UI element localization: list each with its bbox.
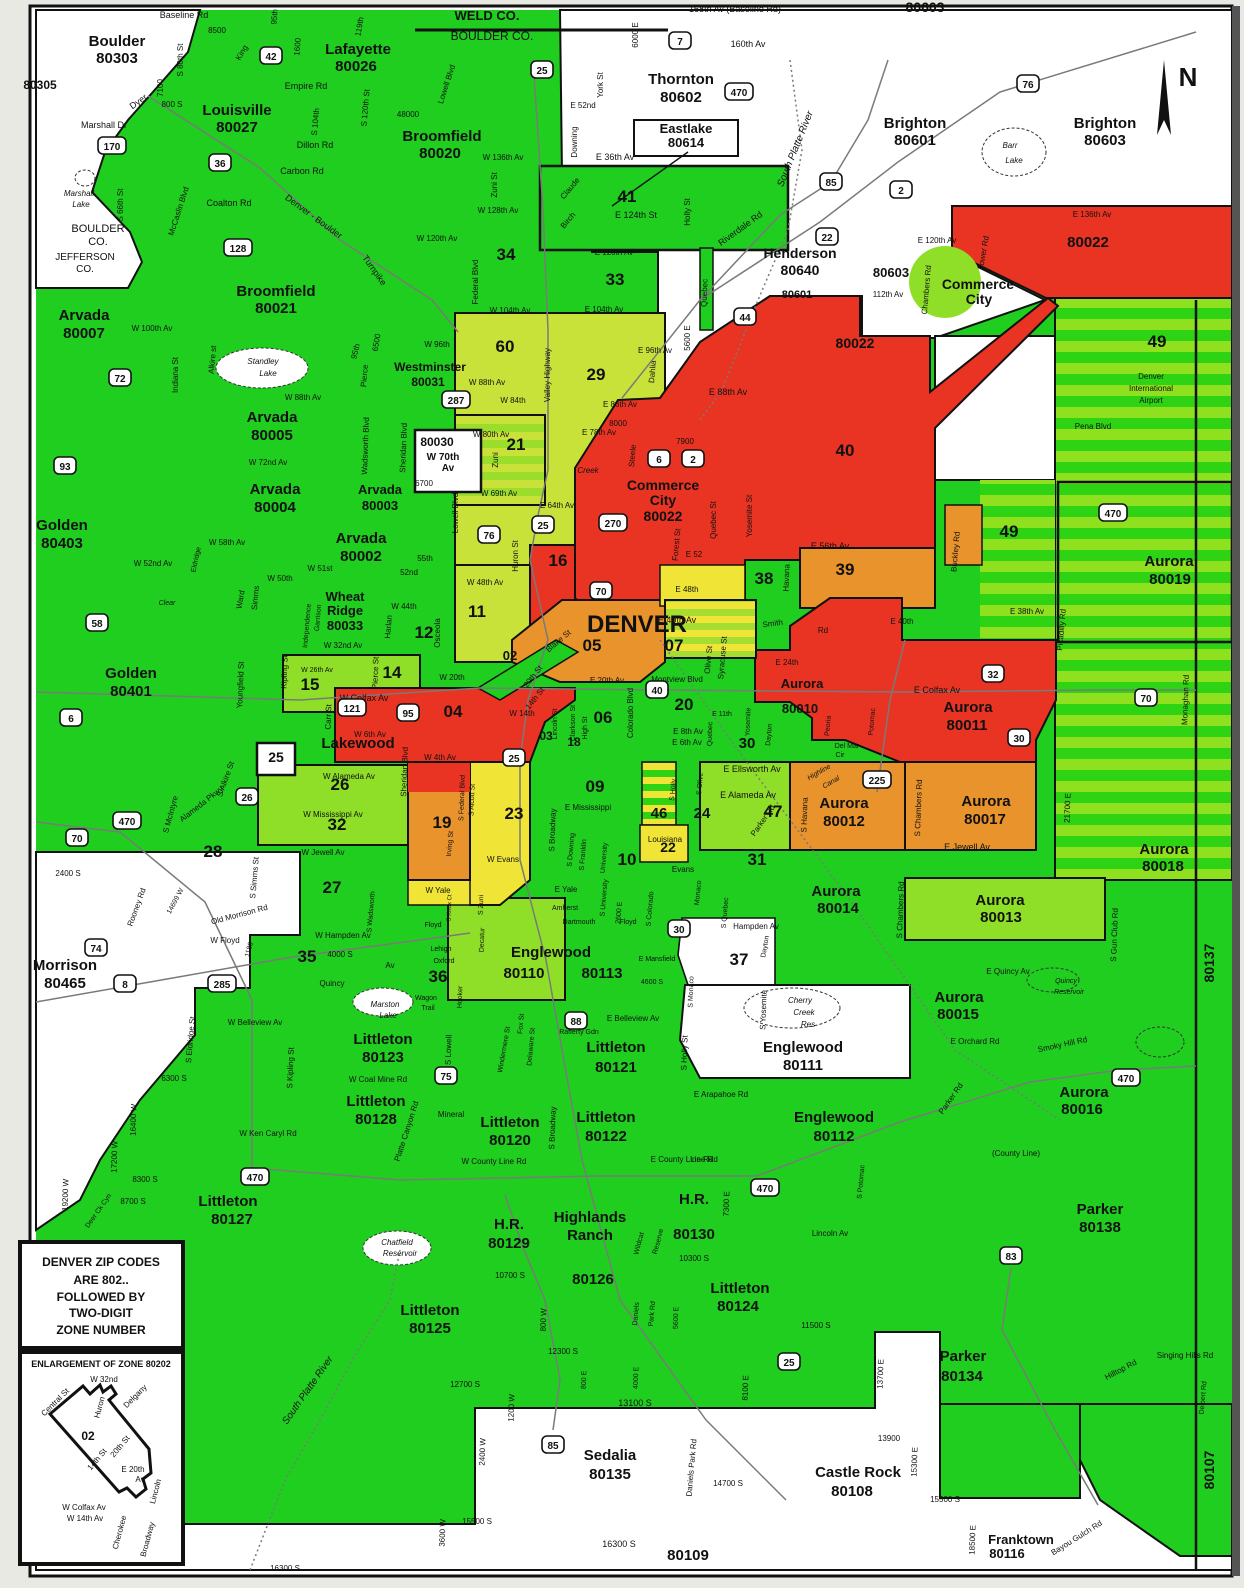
label-20: 20 <box>675 695 694 714</box>
route-shield-225: 225 <box>863 771 891 788</box>
label-e-alameda-av: E Alameda Av <box>720 790 776 800</box>
label-w-colfax-av: W Colfax Av <box>62 1503 105 1512</box>
label-34: 34 <box>497 245 516 264</box>
label-7100: 7100 <box>156 79 165 97</box>
label-1200-w: 1200 W <box>507 1394 517 1422</box>
label-7900: 7900 <box>676 437 694 446</box>
label-aurora: Aurora <box>943 699 993 716</box>
label-louisville: Louisville <box>202 102 271 119</box>
route-shield-number-121: 121 <box>344 704 361 715</box>
label-sheridan-blvd: Sheridan Blvd <box>398 423 409 473</box>
label-brighton: Brighton <box>1074 115 1136 132</box>
route-shield-number-25: 25 <box>783 1358 795 1369</box>
label-s-80th-st: S 80th St <box>176 43 185 77</box>
label-80128: 80128 <box>355 1111 397 1128</box>
route-shield-number-2: 2 <box>898 186 904 197</box>
label-11500-s: 11500 S <box>801 1321 830 1330</box>
label-aurora: Aurora <box>781 676 824 691</box>
label-12: 12 <box>415 623 434 642</box>
label-thornton: Thornton <box>648 71 714 88</box>
label-arvada: Arvada <box>247 409 299 426</box>
label-boulder: BOULDER <box>71 223 124 235</box>
map-page: Boulder8030380305Marshall DrDyer7100S 80… <box>0 0 1244 1588</box>
label-dillon-rd: Dillon Rd <box>297 140 334 150</box>
label-e-48th: E 48th <box>675 585 698 594</box>
label-followed-by: FOLLOWED BY <box>57 1290 146 1304</box>
label-80111: 80111 <box>783 1057 823 1074</box>
label-e-40th-av: E 40th Av <box>658 615 697 625</box>
label-golden: Golden <box>36 517 88 534</box>
label-80125: 80125 <box>409 1320 451 1337</box>
label-decatur: Decatur <box>479 927 487 952</box>
label-37: 37 <box>730 950 749 969</box>
route-shield-470: 470 <box>1099 504 1127 521</box>
label-80640: 80640 <box>781 262 820 278</box>
route-shield-number-70: 70 <box>71 834 83 845</box>
route-shield-93: 93 <box>54 457 76 474</box>
label-huron-st: Huron St <box>511 539 520 571</box>
label-80022: 80022 <box>836 335 875 351</box>
route-shield-8: 8 <box>114 975 136 992</box>
label-denver: Denver <box>1138 372 1164 381</box>
label-littleton: Littleton <box>480 1114 539 1131</box>
label-littleton: Littleton <box>346 1093 405 1110</box>
route-shield-number-25: 25 <box>536 66 548 77</box>
label-w-58th-av: W 58th Av <box>209 538 245 547</box>
route-shield-30: 30 <box>1008 729 1030 746</box>
label-colorado-blvd: Colorado Blvd <box>626 688 635 738</box>
route-shield-128: 128 <box>224 239 252 256</box>
label-24: 24 <box>694 805 711 822</box>
label-09: 09 <box>586 777 605 796</box>
route-shield-72: 72 <box>109 369 131 386</box>
label-80305: 80305 <box>23 78 57 92</box>
label-osceola: Osceola <box>433 618 442 648</box>
label-weld-co: WELD CO. <box>455 8 520 23</box>
label-80614: 80614 <box>668 135 705 150</box>
label-e-8th-av: E 8th Av <box>673 727 703 736</box>
label-14700-s: 14700 S <box>713 1479 743 1488</box>
label-marshall-dr: Marshall Dr <box>81 120 127 130</box>
label-e-arapahoe-rd: E Arapahoe Rd <box>694 1090 748 1099</box>
label-parker: Parker <box>940 1348 987 1365</box>
route-shield-470: 470 <box>725 83 753 100</box>
label-14: 14 <box>383 663 402 682</box>
label-80015: 80015 <box>937 1006 979 1023</box>
label-lowell-blvd: Lowell Blvd <box>451 493 460 533</box>
route-shield-number-85: 85 <box>547 1441 559 1452</box>
label-e-20th: E 20th <box>121 1465 144 1474</box>
label-del-mar: Del Mar <box>835 743 860 750</box>
label-kipling-st: Kipling St <box>279 654 289 689</box>
label-5600-e: 5600 E <box>683 325 692 350</box>
route-shield-25: 25 <box>503 749 525 766</box>
label-80004: 80004 <box>254 499 296 516</box>
label-floyd: Floyd <box>619 919 636 926</box>
label-highlands: Highlands <box>554 1209 627 1226</box>
label-e-quincy-av: E Quincy Av <box>986 967 1029 976</box>
label-80107: 80107 <box>1201 1450 1217 1489</box>
route-shield-76: 76 <box>478 526 500 543</box>
label-w-88th-av: W 88th Av <box>285 393 321 402</box>
label-s-zuni: S Zuni <box>478 894 486 915</box>
label-av: Av <box>385 961 394 970</box>
label-parker: Parker <box>1077 1201 1124 1218</box>
label-80135: 80135 <box>589 1466 631 1483</box>
label-28: 28 <box>204 842 223 861</box>
label-creek: Creek <box>793 1008 815 1017</box>
label-s-66th-st: S 66th St <box>116 188 125 222</box>
route-shield-number-30: 30 <box>1013 734 1025 745</box>
label-s-havana: S Havana <box>799 797 809 833</box>
label-112th-av: 112th Av <box>873 290 903 299</box>
label-e-86th-av: E 86th Av <box>603 400 637 409</box>
label-s-monaco: S Monaco <box>687 976 695 1008</box>
label-e-36th-av: E 36th Av <box>596 152 635 162</box>
route-shield-70: 70 <box>590 582 612 599</box>
label-w-96th: W 96th <box>424 340 449 349</box>
label-s-holly-st: S Holly St <box>679 1034 689 1070</box>
label-35: 35 <box>298 947 317 966</box>
route-shield-number-6: 6 <box>656 455 662 466</box>
label-27: 27 <box>323 878 342 897</box>
label-singing-hills-rd: Singing Hills Rd <box>1157 1351 1213 1360</box>
label-e-124th-st: E 124th St <box>615 210 658 220</box>
route-shield-number-470: 470 <box>731 88 748 99</box>
label-are-802: ARE 802.. <box>73 1273 128 1287</box>
route-shield-32: 32 <box>982 665 1004 682</box>
label-800-s: 800 S <box>162 100 183 109</box>
route-shield-6: 6 <box>60 709 82 726</box>
label-4000-e: 4000 E <box>633 1366 641 1389</box>
label-aurora: Aurora <box>1139 841 1189 858</box>
label-80011: 80011 <box>947 717 988 734</box>
label-denver-zip-codes: DENVER ZIP CODES <box>42 1255 160 1269</box>
label-englewood: Englewood <box>794 1109 874 1126</box>
label-e-orchard-rd: E Orchard Rd <box>951 1037 1000 1046</box>
route-shield-58: 58 <box>86 614 108 631</box>
label-49: 49 <box>1000 522 1019 541</box>
route-shield-number-44: 44 <box>739 313 751 324</box>
label-creek: Creek <box>577 466 599 475</box>
label-s-alcott-st: S Alcott St <box>468 784 476 817</box>
label-80130: 80130 <box>673 1226 715 1243</box>
label-ridge: Ridge <box>327 603 363 618</box>
label-06: 06 <box>594 708 613 727</box>
label-e-ellsworth-av: E Ellsworth Av <box>723 764 781 774</box>
route-shield-95: 95 <box>397 704 419 721</box>
label-80012: 80012 <box>823 813 865 830</box>
route-shield-number-8: 8 <box>122 980 128 991</box>
route-shield-number-26: 26 <box>241 793 253 804</box>
label-arvada: Arvada <box>336 530 388 547</box>
label-29: 29 <box>587 365 606 384</box>
label-reservoir: Reservoir <box>383 1249 418 1258</box>
label-h-r: H.R. <box>494 1216 524 1233</box>
label-marshall: Marshall <box>64 189 94 198</box>
label-littleton: Littleton <box>400 1302 459 1319</box>
label-w-48th-av: W 48th Av <box>467 578 503 587</box>
route-shield-number-36: 36 <box>214 159 226 170</box>
label-marston: Marston <box>371 1000 400 1009</box>
label-8700-s: 8700 S <box>120 1197 145 1206</box>
label-englewood: Englewood <box>763 1039 843 1056</box>
label-boulder: Boulder <box>89 33 146 50</box>
label-castle-rock: Castle Rock <box>815 1464 902 1481</box>
label-80303: 80303 <box>96 50 138 67</box>
outer-right-band <box>1232 6 1240 1576</box>
label-21: 21 <box>507 435 526 454</box>
label-41: 41 <box>618 187 637 206</box>
label-w-32nd: W 32nd <box>90 1375 118 1384</box>
label-w-hampden-av: W Hampden Av <box>315 931 370 940</box>
label-s-broadway: S Broadway <box>547 1106 558 1149</box>
label-w-belleview-av: W Belleview Av <box>228 1018 283 1027</box>
route-shield-70: 70 <box>66 829 88 846</box>
label-aurora: Aurora <box>1059 1084 1109 1101</box>
label-e-88th-av: E 88th Av <box>709 387 748 397</box>
label-6000-e: 6000 E <box>631 22 640 47</box>
label-18: 18 <box>567 735 581 749</box>
label-2400-s: 2400 S <box>55 869 80 878</box>
label-e-120th-av: E 120th Av <box>918 236 957 245</box>
label-80027: 80027 <box>216 119 258 136</box>
route-shield-number-128: 128 <box>230 244 247 255</box>
label-80017: 80017 <box>964 811 1006 828</box>
label-w-104th-av: W 104th Av <box>490 306 531 315</box>
route-shield-7: 7 <box>669 32 691 49</box>
label-empire-rd: Empire Rd <box>285 81 328 91</box>
label-e-jewell-av: E Jewell Av <box>944 842 990 852</box>
label-80021: 80021 <box>255 300 297 317</box>
route-shield-number-225: 225 <box>869 776 886 787</box>
label-7300-e: 7300 E <box>722 1191 732 1217</box>
label-yosemite-st: Yosemite St <box>745 494 754 537</box>
label-8100-e: 8100 E <box>741 1375 751 1401</box>
route-shield-30: 30 <box>668 920 690 937</box>
label-yosemite: Yosemite <box>745 707 753 736</box>
label-8500: 8500 <box>208 26 226 35</box>
route-shield-number-42: 42 <box>265 52 277 63</box>
label-lake: Lake <box>1005 156 1023 165</box>
green-parker-tail <box>940 1404 1080 1498</box>
route-shield-85: 85 <box>820 173 842 190</box>
label-w-yale: W Yale <box>425 886 451 895</box>
label-arvada: Arvada <box>358 482 403 497</box>
label-wagon: Wagon <box>415 995 437 1002</box>
label-95th: 95th <box>269 9 279 25</box>
label-chatfield: Chatfield <box>381 1238 413 1247</box>
label-aurora: Aurora <box>811 883 861 900</box>
label-two-digit: TWO-DIGIT <box>69 1306 134 1320</box>
label-4000-s: 4000 S <box>327 950 352 959</box>
label-80138: 80138 <box>1079 1219 1121 1236</box>
label-e-mansfield: E Mansfield <box>639 956 676 963</box>
label-80108: 80108 <box>831 1483 873 1500</box>
label-w-44th: W 44th <box>391 602 416 611</box>
route-shield-36: 36 <box>209 154 231 171</box>
label-13100-s: 13100 S <box>618 1398 652 1408</box>
label-80033: 80033 <box>327 618 363 633</box>
label-hooker: Hooker <box>457 985 465 1008</box>
label-barr: Barr <box>1002 141 1017 150</box>
label-60: 60 <box>496 337 515 356</box>
label-arvada: Arvada <box>59 307 111 324</box>
label-12700-s: 12700 S <box>450 1380 480 1389</box>
label-n: N <box>1179 62 1198 92</box>
label-floyd: Floyd <box>424 922 441 929</box>
label-16300-s: 16300 S <box>270 1564 300 1573</box>
label-carbon-rd: Carbon Rd <box>280 166 324 176</box>
label-19200-w: 19200 W <box>60 1178 70 1211</box>
label-1600: 1600 <box>292 37 303 56</box>
label-6700: 6700 <box>415 479 433 488</box>
label-cherry: Cherry <box>788 996 813 1005</box>
label-10: 10 <box>618 850 637 869</box>
route-shield-287: 287 <box>442 391 470 408</box>
label-80026: 80026 <box>335 58 377 75</box>
label-33: 33 <box>606 270 625 289</box>
label-zuni-st: Zuni St <box>490 172 499 198</box>
label-w-floyd: W Floyd <box>210 936 239 945</box>
label-lincoln-av: Lincoln Av <box>812 1229 848 1238</box>
label-8300-s: 8300 S <box>132 1175 157 1184</box>
label-quebec: Quebec <box>700 279 710 307</box>
label-e-56th-av: E 56th Av <box>811 541 850 551</box>
label-enlargement-of-zone-80202: ENLARGEMENT OF ZONE 80202 <box>31 1359 171 1369</box>
label-mineral: Mineral <box>438 1110 464 1119</box>
label-lincoln-st: Lincoln St <box>552 709 559 740</box>
route-shield-25: 25 <box>532 516 554 533</box>
label-80002: 80002 <box>340 548 382 565</box>
label-littleton: Littleton <box>576 1109 635 1126</box>
label-trail: Trail <box>421 1005 435 1012</box>
label-10700-s: 10700 S <box>495 1271 525 1280</box>
route-shield-number-170: 170 <box>104 142 121 153</box>
label-zuni: Zuni <box>491 452 500 468</box>
label-h-r: H.R. <box>679 1191 709 1208</box>
route-shield-470: 470 <box>751 1179 779 1196</box>
label-e-colfax-av: E Colfax Av <box>914 685 961 695</box>
route-shield-number-470: 470 <box>1105 509 1122 520</box>
route-shield-25: 25 <box>531 61 553 78</box>
label-80137: 80137 <box>1201 943 1217 982</box>
route-shield-83: 83 <box>1000 1247 1022 1264</box>
label-jefferson: JEFFERSON <box>55 252 114 263</box>
label-co: CO. <box>88 236 108 248</box>
label-arvada: Arvada <box>250 481 302 498</box>
label-quincy: Quincy <box>1055 978 1077 985</box>
label-13700-e: 13700 E <box>875 1359 885 1389</box>
label-e-40th: E 40th <box>890 617 913 626</box>
route-shield-40: 40 <box>646 681 668 698</box>
label-15500-s: 15500 S <box>462 1517 492 1526</box>
label-littleton: Littleton <box>198 1193 257 1210</box>
label-80031: 80031 <box>411 375 445 389</box>
label-w-84th: W 84th <box>500 396 525 405</box>
route-shield-number-25: 25 <box>537 521 549 532</box>
route-shield-25: 25 <box>778 1353 800 1370</box>
label-16400-w: 16400 W <box>128 1103 138 1136</box>
label-36: 36 <box>429 967 448 986</box>
lake-standley <box>216 348 308 388</box>
label-80014: 80014 <box>817 900 859 917</box>
route-shield-285: 285 <box>208 975 236 992</box>
label-e-104th-av: E 104th Av <box>585 305 624 314</box>
label-11: 11 <box>468 602 486 621</box>
label-broomfield: Broomfield <box>236 283 315 300</box>
label-downing: Downing <box>570 126 579 157</box>
label-york-st: York St <box>596 71 605 97</box>
route-shield-number-85: 85 <box>825 178 837 189</box>
label-80465: 80465 <box>44 975 86 992</box>
label-3600-w: 3600 W <box>438 1519 448 1547</box>
label-ranch: Ranch <box>567 1227 613 1244</box>
label-aurora: Aurora <box>961 793 1011 810</box>
route-shield-2: 2 <box>890 181 912 198</box>
label-02: 02 <box>503 648 517 663</box>
route-shield-number-25: 25 <box>508 754 520 765</box>
label-commerce: Commerce <box>942 276 1015 292</box>
label-6300-s: 6300 S <box>161 1074 186 1083</box>
route-shield-number-40: 40 <box>651 686 663 697</box>
label-quebec-st: Quebec St <box>709 500 718 539</box>
label-30: 30 <box>739 735 756 752</box>
label-w-4th-av: W 4th Av <box>424 753 456 762</box>
route-shield-6: 6 <box>648 450 670 467</box>
label-160th-av: 160th Av <box>731 39 766 49</box>
label-80003: 80003 <box>362 498 398 513</box>
label-co: CO. <box>76 264 94 275</box>
label-w-72nd-av: W 72nd Av <box>249 458 288 467</box>
route-shield-121: 121 <box>338 699 366 716</box>
label-lake: Lake <box>72 200 90 209</box>
label-w-14th-av: W 14th Av <box>67 1514 103 1523</box>
label-s-yosemite: S Yosemite <box>758 989 768 1030</box>
label-55th: 55th <box>417 554 433 563</box>
label-16300-s: 16300 S <box>602 1539 636 1549</box>
label-46: 46 <box>651 805 668 822</box>
route-shield-number-58: 58 <box>91 619 103 630</box>
label-80018: 80018 <box>1142 858 1184 875</box>
label-w-136th-av: W 136th Av <box>483 153 524 162</box>
label-w-26th-av: W 26th Av <box>301 667 333 674</box>
label-80030: 80030 <box>420 435 454 449</box>
label-franktown: Franktown <box>988 1532 1054 1547</box>
label-w-jewell-av: W Jewell Av <box>302 848 345 857</box>
label-s-kipling-st: S Kipling St <box>285 1046 295 1088</box>
route-shield-76: 76 <box>1017 75 1039 92</box>
route-shield-number-74: 74 <box>90 944 102 955</box>
label-county-line: (County Line) <box>992 1149 1040 1158</box>
label-oxford: Oxford <box>433 958 454 965</box>
label-high-st: High St <box>582 716 589 739</box>
route-shield-number-95: 95 <box>402 709 414 720</box>
label-5600-e: 5600 E <box>673 1306 681 1329</box>
route-shield-470: 470 <box>241 1168 269 1185</box>
label-w-coal-mine-rd: W Coal Mine Rd <box>349 1075 407 1084</box>
label-w-14th: W 14th <box>509 709 534 718</box>
label-coalton-rd: Coalton Rd <box>206 198 251 208</box>
label-05: 05 <box>583 636 602 655</box>
label-w-70th: W 70th <box>427 452 460 463</box>
label-cir: Cir <box>836 752 846 759</box>
label-80022: 80022 <box>1067 234 1109 251</box>
label-19: 19 <box>433 813 452 832</box>
label-w-32nd-av: W 32nd Av <box>324 641 363 650</box>
label-80019: 80019 <box>1149 571 1191 588</box>
label-w-evans: W Evans <box>487 855 519 864</box>
